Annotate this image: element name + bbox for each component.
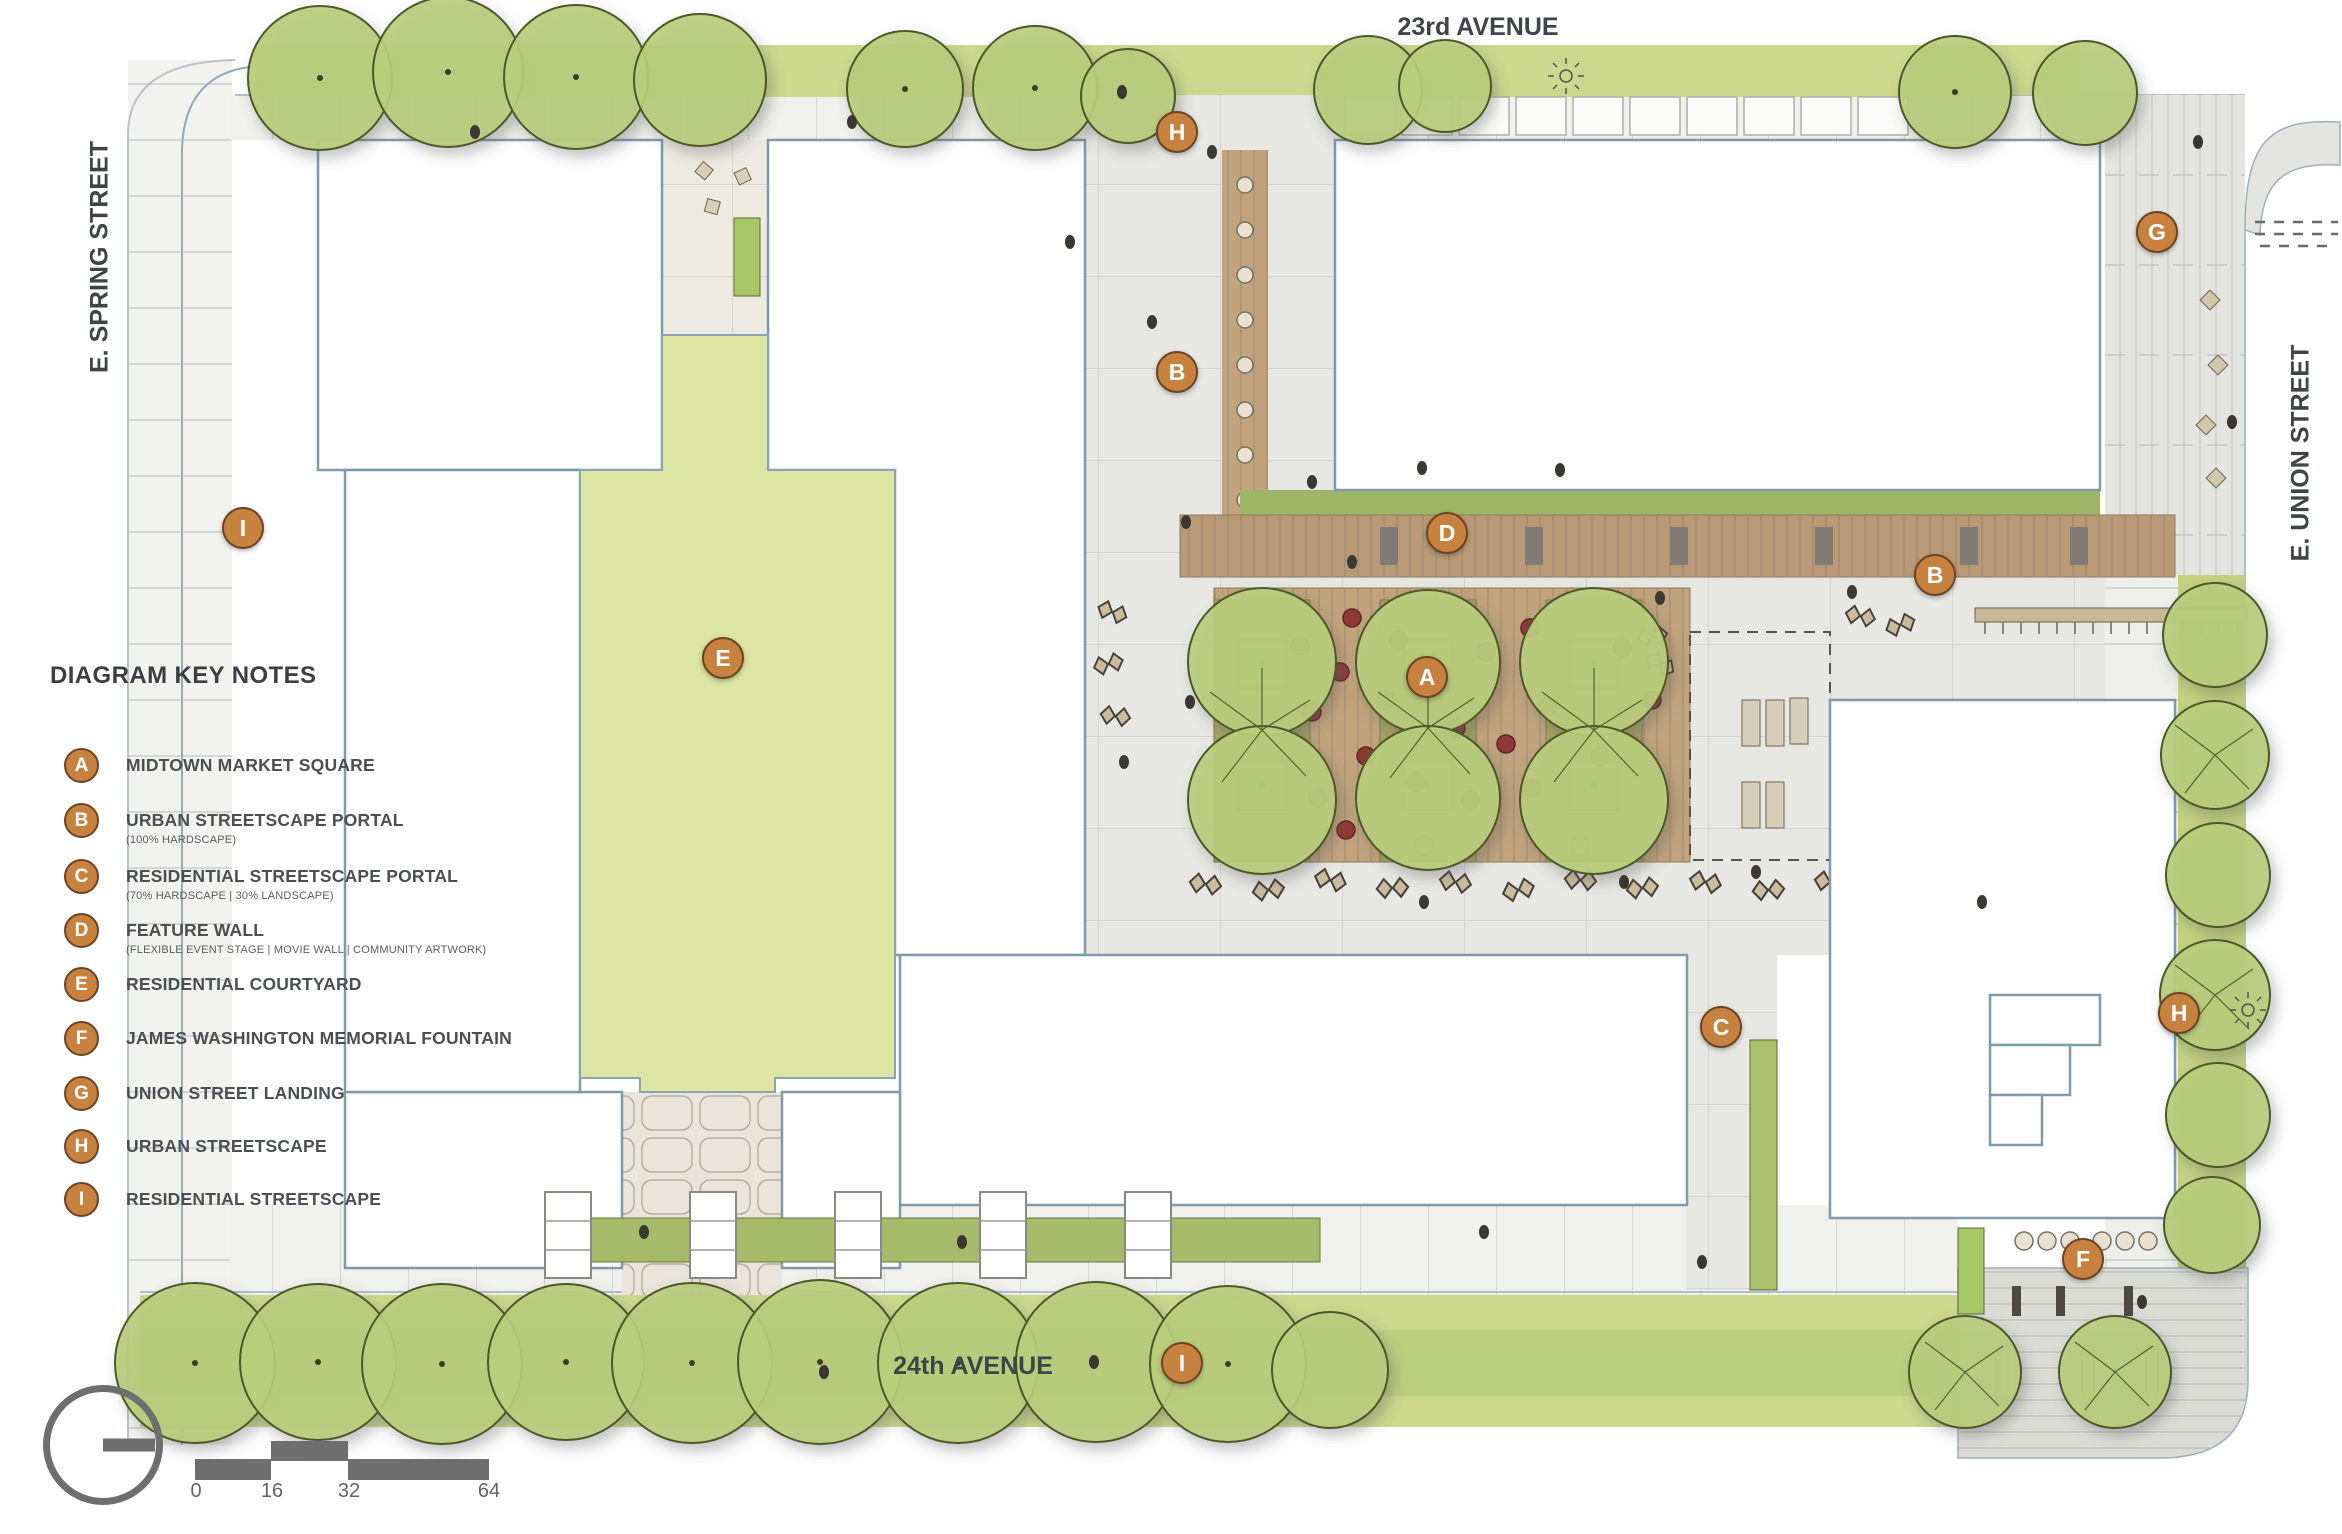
key-note-d-label: FEATURE WALL: [126, 920, 486, 941]
key-note-i: I RESIDENTIAL STREETSCAPE: [64, 1182, 381, 1217]
key-note-b: B URBAN STREETSCAPE PORTAL(100% HARDSCAP…: [64, 803, 404, 846]
key-note-d-badge: D: [64, 913, 99, 948]
scale-label-16: 16: [261, 1480, 283, 1503]
plan-marker-urban-portal-east: B: [1914, 554, 1956, 596]
scale-bar-segment: [195, 1459, 271, 1480]
residential-streetscape-portal-walkway: [1687, 955, 1777, 1290]
plan-marker-midtown-market-square: A: [1406, 656, 1448, 698]
key-note-c-badge: C: [64, 859, 99, 894]
plan-marker-residential-streetscape-west: I: [222, 507, 264, 549]
scale-bar-segment: [271, 1441, 348, 1461]
key-note-i-label: RESIDENTIAL STREETSCAPE: [126, 1189, 381, 1210]
key-note-f-label: JAMES WASHINGTON MEMORIAL FOUNTAIN: [126, 1028, 512, 1049]
key-note-h-label: URBAN STREETSCAPE: [126, 1136, 327, 1157]
plan-marker-residential-courtyard: E: [702, 637, 744, 679]
key-note-e-badge: E: [64, 967, 99, 1002]
plan-marker-urban-portal: B: [1156, 351, 1198, 393]
key-note-b-badge: B: [64, 803, 99, 838]
site-plan-page: 23rd AVENUE 24th AVENUE E. SPRING STREET…: [0, 0, 2342, 1534]
plan-marker-memorial-fountain: F: [2062, 1238, 2104, 1280]
key-note-g-badge: G: [64, 1076, 99, 1111]
plan-marker-urban-streetscape-north: H: [1156, 111, 1198, 153]
street-label-e-spring-street: E. SPRING STREET: [86, 141, 115, 373]
plan-marker-residential-portal: C: [1700, 1006, 1742, 1048]
key-note-a: A MIDTOWN MARKET SQUARE: [64, 748, 375, 783]
plan-marker-union-street-landing: G: [2136, 211, 2178, 253]
plan-marker-residential-streetscape-south: I: [1161, 1342, 1203, 1384]
key-note-a-badge: A: [64, 748, 99, 783]
scale-label-0: 0: [190, 1480, 201, 1503]
street-label-e-union-street: E. UNION STREET: [2287, 345, 2316, 562]
key-note-f: F JAMES WASHINGTON MEMORIAL FOUNTAIN: [64, 1021, 512, 1056]
key-note-g: G UNION STREET LANDING: [64, 1076, 345, 1111]
key-note-h-badge: H: [64, 1129, 99, 1164]
key-note-f-badge: F: [64, 1021, 99, 1056]
feature-wall: [1180, 490, 2175, 577]
scale-label-32: 32: [338, 1480, 360, 1503]
street-label-24th-avenue: 24th AVENUE: [893, 1352, 1053, 1381]
key-notes-title: DIAGRAM KEY NOTES: [50, 662, 316, 690]
market-square-trees: [1188, 588, 1668, 874]
north-arrow-icon: [43, 1385, 163, 1505]
key-note-e-label: RESIDENTIAL COURTYARD: [126, 974, 362, 995]
key-note-a-label: MIDTOWN MARKET SQUARE: [126, 755, 375, 776]
scale-bar-segment: [348, 1459, 489, 1480]
courtyard-entry-passage: [662, 140, 768, 338]
plan-marker-urban-streetscape-east: H: [2158, 992, 2200, 1034]
key-note-c: C RESIDENTIAL STREETSCAPE PORTAL(70% HAR…: [64, 859, 458, 902]
key-note-b-label: URBAN STREETSCAPE PORTAL: [126, 810, 404, 831]
street-label-23rd-avenue: 23rd AVENUE: [1397, 13, 1558, 42]
key-note-d: D FEATURE WALL(FLEXIBLE EVENT STAGE | MO…: [64, 913, 486, 956]
key-note-e: E RESIDENTIAL COURTYARD: [64, 967, 362, 1002]
key-note-i-badge: I: [64, 1182, 99, 1217]
key-note-g-label: UNION STREET LANDING: [126, 1083, 345, 1104]
plan-marker-feature-wall: D: [1426, 512, 1468, 554]
key-note-c-label: RESIDENTIAL STREETSCAPE PORTAL: [126, 866, 458, 887]
scale-label-64: 64: [478, 1480, 500, 1503]
key-note-h: H URBAN STREETSCAPE: [64, 1129, 327, 1164]
